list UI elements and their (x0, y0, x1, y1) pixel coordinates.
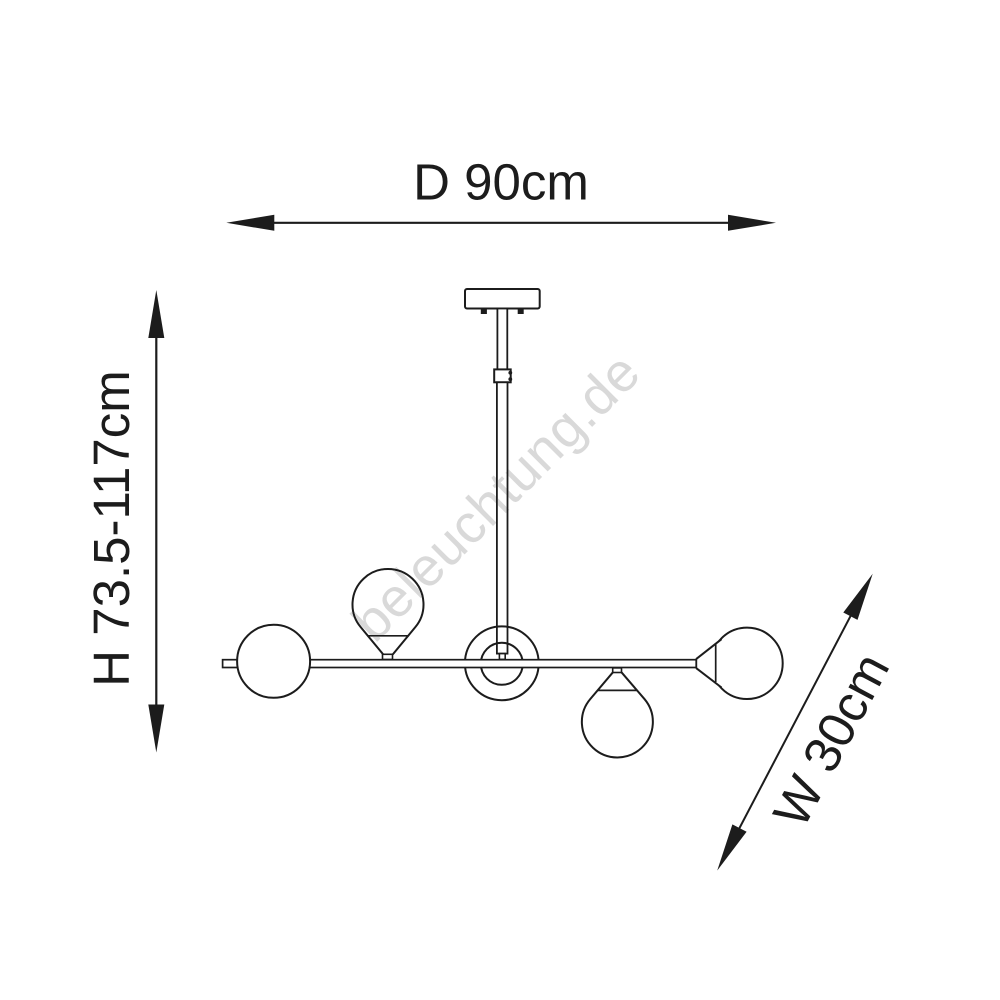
svg-text:D 90cm: D 90cm (413, 154, 589, 211)
svg-text:H 73.5-117cm: H 73.5-117cm (83, 370, 140, 687)
